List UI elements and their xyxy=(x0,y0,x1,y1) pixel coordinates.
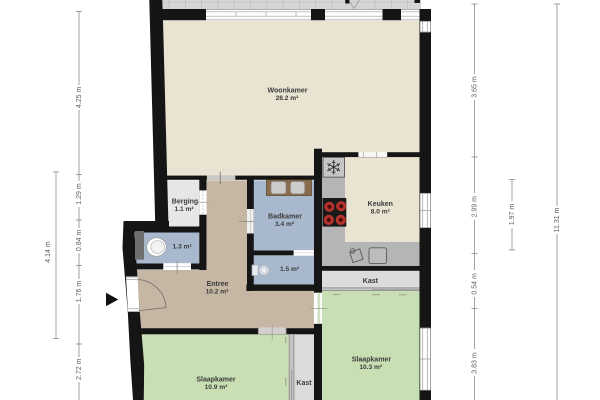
svg-text:1.76 m: 1.76 m xyxy=(76,281,83,303)
svg-text:10.3 m²: 10.3 m² xyxy=(359,364,383,371)
svg-text:Slaapkamer: Slaapkamer xyxy=(352,357,392,364)
svg-text:1.29 m: 1.29 m xyxy=(76,183,83,205)
svg-text:4.25 m: 4.25 m xyxy=(76,87,83,109)
svg-text:1.3 m²: 1.3 m² xyxy=(172,244,192,251)
svg-text:Entree: Entree xyxy=(207,281,229,288)
svg-text:3.83 m: 3.83 m xyxy=(472,352,479,374)
svg-text:3.65 m: 3.65 m xyxy=(472,76,479,98)
svg-text:0.54 m: 0.54 m xyxy=(472,273,479,295)
svg-text:Kast: Kast xyxy=(363,278,379,285)
svg-text:Badkamer: Badkamer xyxy=(268,214,302,221)
svg-text:Berging: Berging xyxy=(172,199,198,206)
svg-text:Slaapkamer: Slaapkamer xyxy=(196,377,236,384)
svg-text:10.9 m²: 10.9 m² xyxy=(205,384,229,391)
svg-text:Woonkamer: Woonkamer xyxy=(268,88,308,95)
svg-text:10.2 m²: 10.2 m² xyxy=(206,289,230,296)
svg-text:1.97 m: 1.97 m xyxy=(509,204,516,226)
svg-text:0.84 m: 0.84 m xyxy=(76,230,83,252)
svg-text:8.0 m²: 8.0 m² xyxy=(371,209,391,216)
svg-text:1.1 m²: 1.1 m² xyxy=(174,206,194,213)
svg-text:Keuken: Keuken xyxy=(368,201,393,208)
svg-text:28.2 m²: 28.2 m² xyxy=(276,95,300,102)
svg-text:1.5 m²: 1.5 m² xyxy=(280,266,300,273)
svg-text:4.14 m: 4.14 m xyxy=(45,241,52,263)
svg-text:2.72 m: 2.72 m xyxy=(76,358,83,380)
svg-text:3.4 m²: 3.4 m² xyxy=(275,221,295,228)
svg-text:2.99 m: 2.99 m xyxy=(472,196,479,218)
svg-text:Kast: Kast xyxy=(296,380,312,387)
svg-text:11.31 m: 11.31 m xyxy=(554,207,561,232)
